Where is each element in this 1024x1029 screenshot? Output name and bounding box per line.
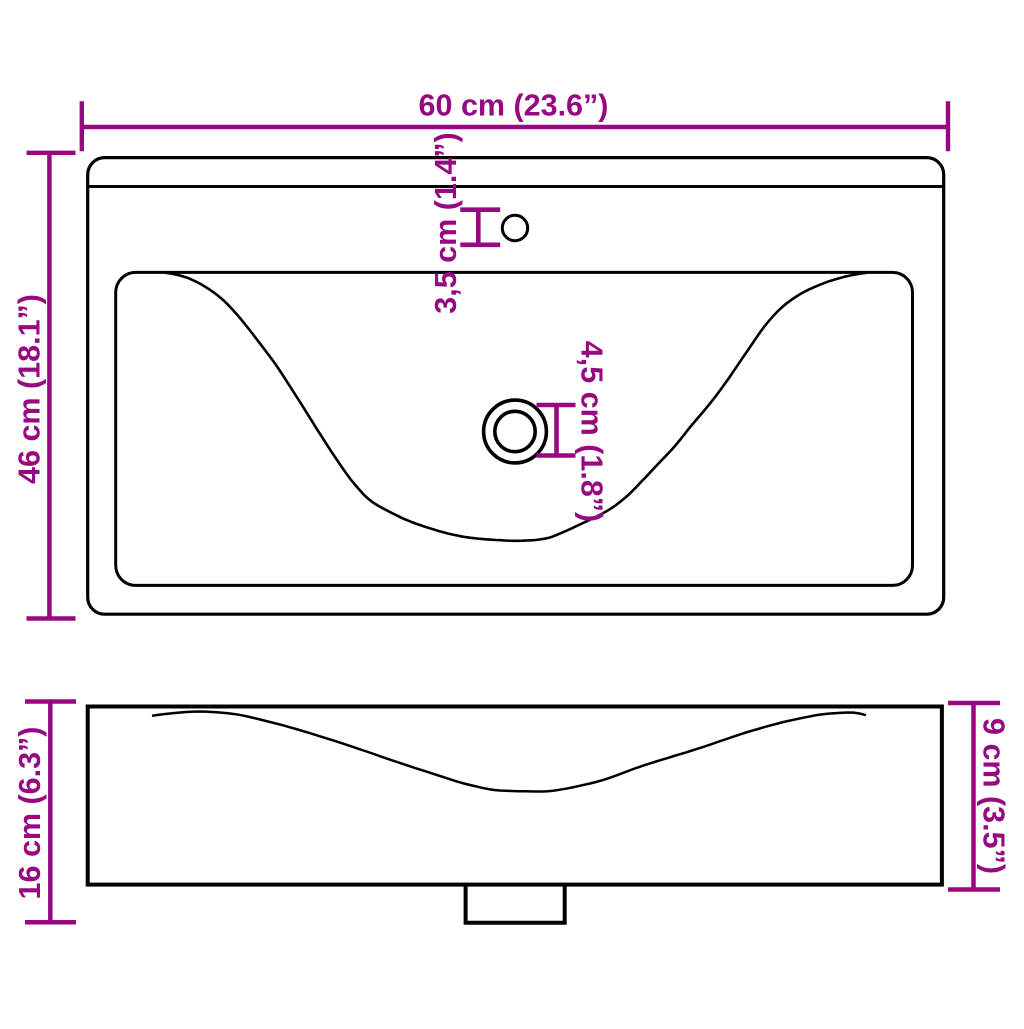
svg-text:9 cm (3.5”): 9 cm (3.5”) (977, 718, 1011, 874)
svg-text:60 cm (23.6”): 60 cm (23.6”) (419, 89, 609, 123)
svg-text:4,5 cm (1.8”): 4,5 cm (1.8”) (575, 341, 609, 522)
svg-text:46 cm (18.1”): 46 cm (18.1”) (13, 294, 47, 484)
svg-text:16 cm (6.3”): 16 cm (6.3”) (13, 727, 47, 900)
svg-text:3,5 cm (1.4”): 3,5 cm (1.4”) (429, 132, 463, 313)
